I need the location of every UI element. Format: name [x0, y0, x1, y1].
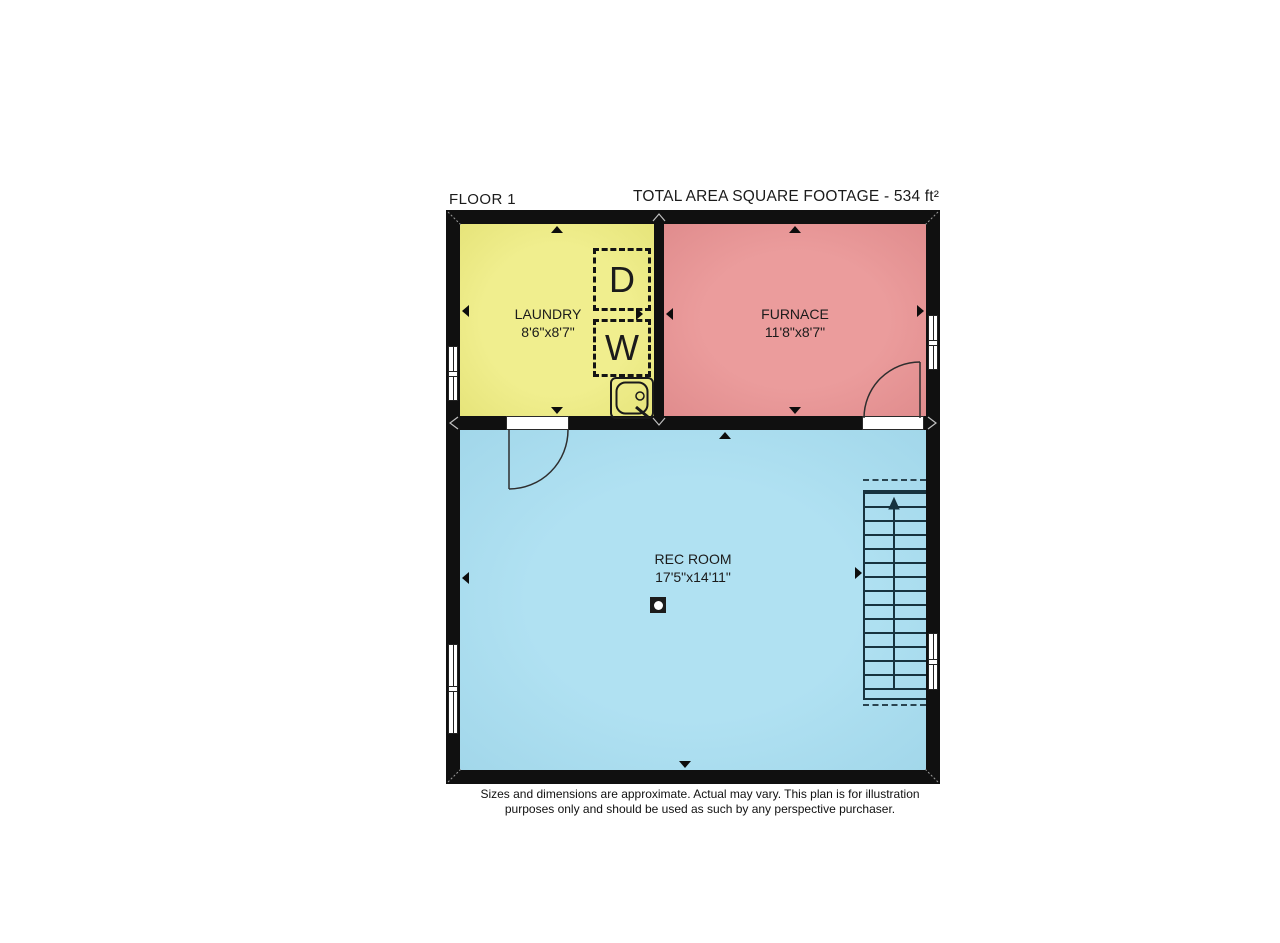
total-area-label: TOTAL AREA SQUARE FOOTAGE - 534 ft²: [633, 188, 939, 206]
room-rec-name: REC ROOM: [460, 551, 926, 569]
dimension-arrow-up-icon: [789, 226, 801, 233]
dimension-arrow-down-icon: [789, 407, 801, 414]
room-laundry: LAUNDRY 8'6"x8'7" D W: [460, 224, 654, 416]
room-furnace-name: FURNACE: [664, 306, 926, 324]
room-furnace: FURNACE 11'8"x8'7": [664, 224, 926, 416]
dryer-box: D: [593, 248, 651, 311]
door-opening-furnace: [862, 416, 924, 430]
disclaimer-text: Sizes and dimensions are approximate. Ac…: [450, 787, 950, 817]
dimension-arrow-right-icon: [636, 308, 643, 320]
disclaimer-line-2: purposes only and should be used as such…: [450, 802, 950, 817]
door-opening-laundry: [506, 416, 569, 430]
room-rec: REC ROOM 17'5"x14'11": [460, 430, 926, 770]
window-furnace-right: [928, 315, 938, 370]
dimension-arrow-left-icon: [666, 308, 673, 320]
dimension-arrow-right-icon: [855, 567, 862, 579]
room-furnace-dimensions: 11'8"x8'7": [664, 324, 926, 342]
window-rec-left: [448, 644, 458, 734]
dimension-arrow-up-icon: [551, 226, 563, 233]
support-column-icon: [650, 597, 666, 613]
staircase: [863, 490, 926, 700]
floor-plan-page: FLOOR 1 TOTAL AREA SQUARE FOOTAGE - 534 …: [0, 0, 1280, 943]
window-laundry-left: [448, 346, 458, 401]
room-furnace-label: FURNACE 11'8"x8'7": [664, 306, 926, 341]
dimension-arrow-left-icon: [462, 572, 469, 584]
washer-label: W: [605, 327, 639, 369]
dryer-label: D: [609, 259, 635, 301]
dimension-arrow-down-icon: [551, 407, 563, 414]
disclaimer-line-1: Sizes and dimensions are approximate. Ac…: [450, 787, 950, 802]
window-rec-right: [928, 633, 938, 690]
dimension-arrow-right-icon: [917, 305, 924, 317]
stairs-break-line: [863, 704, 926, 706]
floor-title: FLOOR 1: [449, 191, 516, 208]
stairs-break-line: [863, 479, 926, 481]
dimension-arrow-left-icon: [462, 305, 469, 317]
dimension-arrow-down-icon: [679, 761, 691, 768]
washer-box: W: [593, 319, 651, 377]
floor-plan: LAUNDRY 8'6"x8'7" D W FURNACE 11'8"x8'7": [446, 210, 940, 784]
dimension-arrow-up-icon: [719, 432, 731, 439]
